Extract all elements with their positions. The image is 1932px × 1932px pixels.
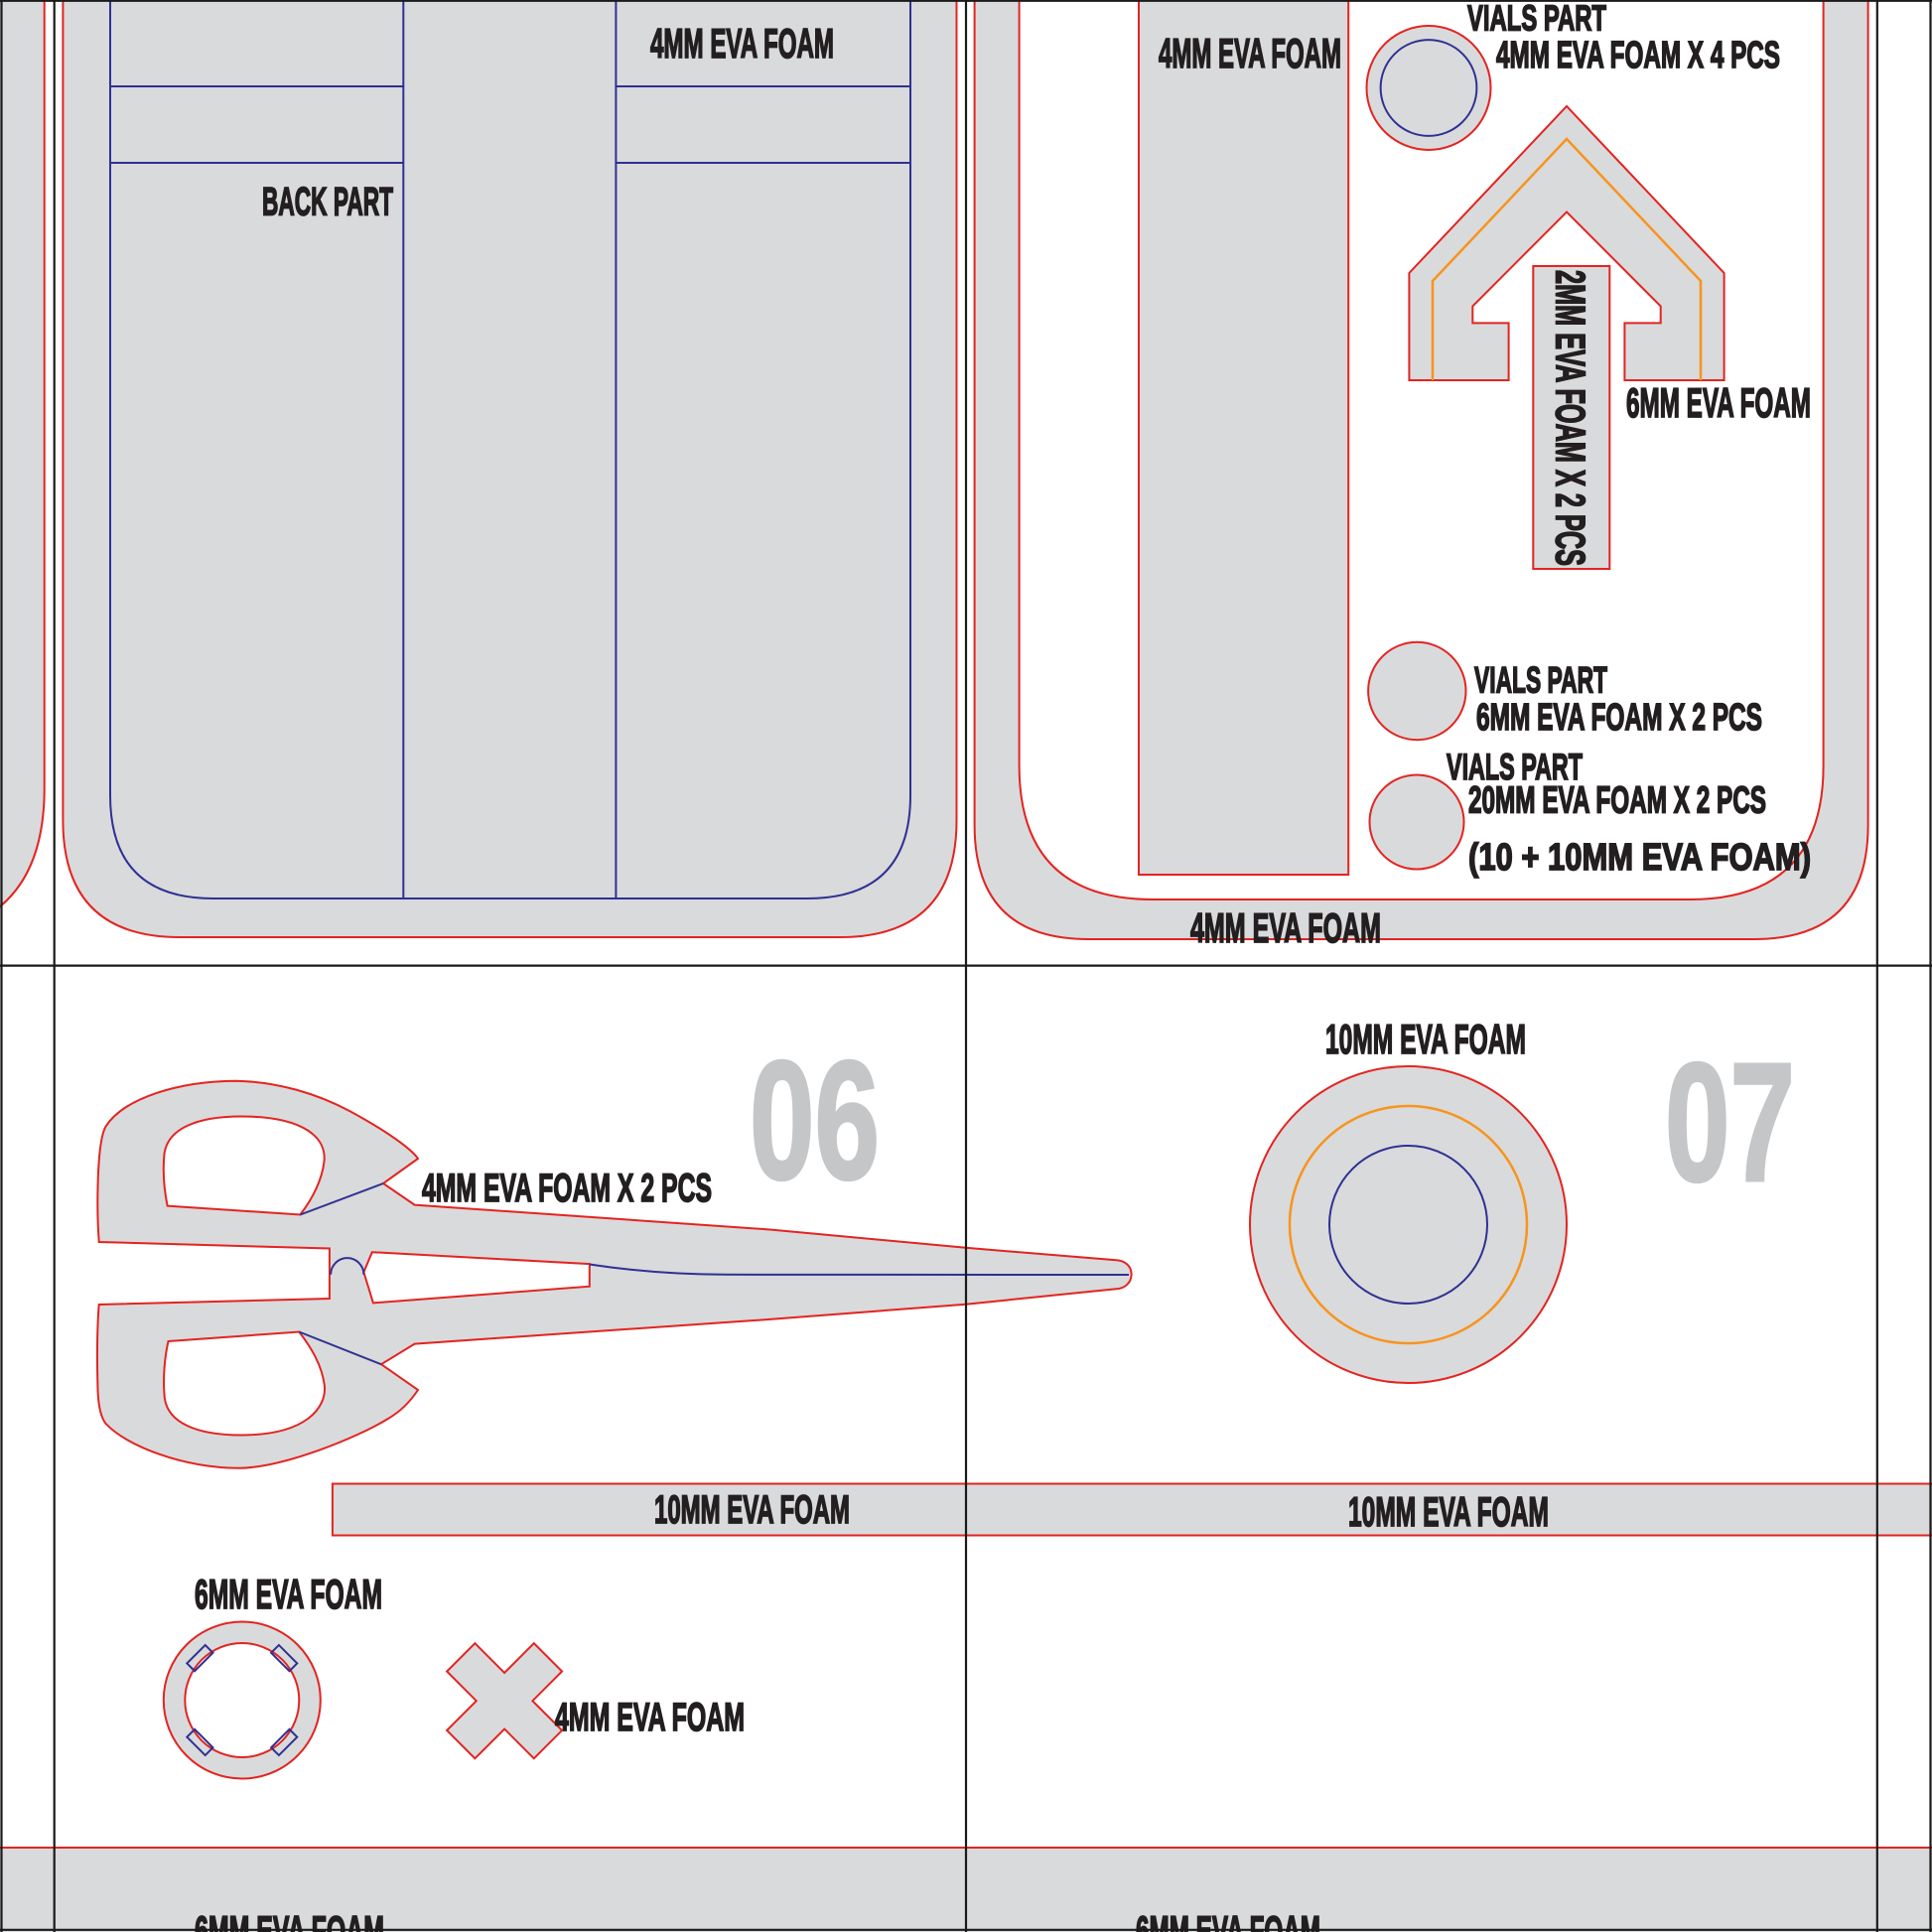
svg-text:4MM EVA FOAM: 4MM EVA FOAM xyxy=(650,20,834,67)
svg-text:6MM EVA FOAM: 6MM EVA FOAM xyxy=(195,1571,382,1617)
svg-text:4MM EVA FOAM X 4 PCS: 4MM EVA FOAM X 4 PCS xyxy=(1496,35,1780,76)
svg-text:VIALS PART: VIALS PART xyxy=(1474,660,1607,701)
svg-text:06: 06 xyxy=(750,1027,880,1215)
svg-text:4MM EVA FOAM X 2 PCS: 4MM EVA FOAM X 2 PCS xyxy=(422,1167,712,1210)
svg-text:20MM EVA FOAM X 2 PCS: 20MM EVA FOAM X 2 PCS xyxy=(1468,780,1766,822)
svg-text:2MM EVA FOAM X 2 PCS: 2MM EVA FOAM X 2 PCS xyxy=(1548,270,1594,566)
svg-text:10MM EVA FOAM: 10MM EVA FOAM xyxy=(654,1488,850,1532)
svg-text:07: 07 xyxy=(1665,1029,1795,1217)
svg-text:6MM EVA FOAM: 6MM EVA FOAM xyxy=(1626,379,1811,426)
svg-text:VIALS PART: VIALS PART xyxy=(1467,0,1606,39)
svg-text:4MM EVA FOAM: 4MM EVA FOAM xyxy=(1159,30,1341,76)
svg-text:(10 + 10MM EVA FOAM): (10 + 10MM EVA FOAM) xyxy=(1468,837,1811,879)
svg-text:6MM EVA FOAM: 6MM EVA FOAM xyxy=(195,1907,384,1932)
svg-text:10MM EVA FOAM: 10MM EVA FOAM xyxy=(1325,1016,1526,1062)
svg-text:6MM EVA FOAM: 6MM EVA FOAM xyxy=(1136,1907,1320,1932)
svg-text:BACK PART: BACK PART xyxy=(262,181,393,224)
svg-text:4MM EVA FOAM: 4MM EVA FOAM xyxy=(1190,904,1381,951)
svg-text:10MM EVA FOAM: 10MM EVA FOAM xyxy=(1348,1488,1549,1535)
svg-text:6MM EVA FOAM X 2 PCS: 6MM EVA FOAM X 2 PCS xyxy=(1476,697,1762,739)
svg-text:4MM EVA FOAM: 4MM EVA FOAM xyxy=(555,1696,745,1739)
